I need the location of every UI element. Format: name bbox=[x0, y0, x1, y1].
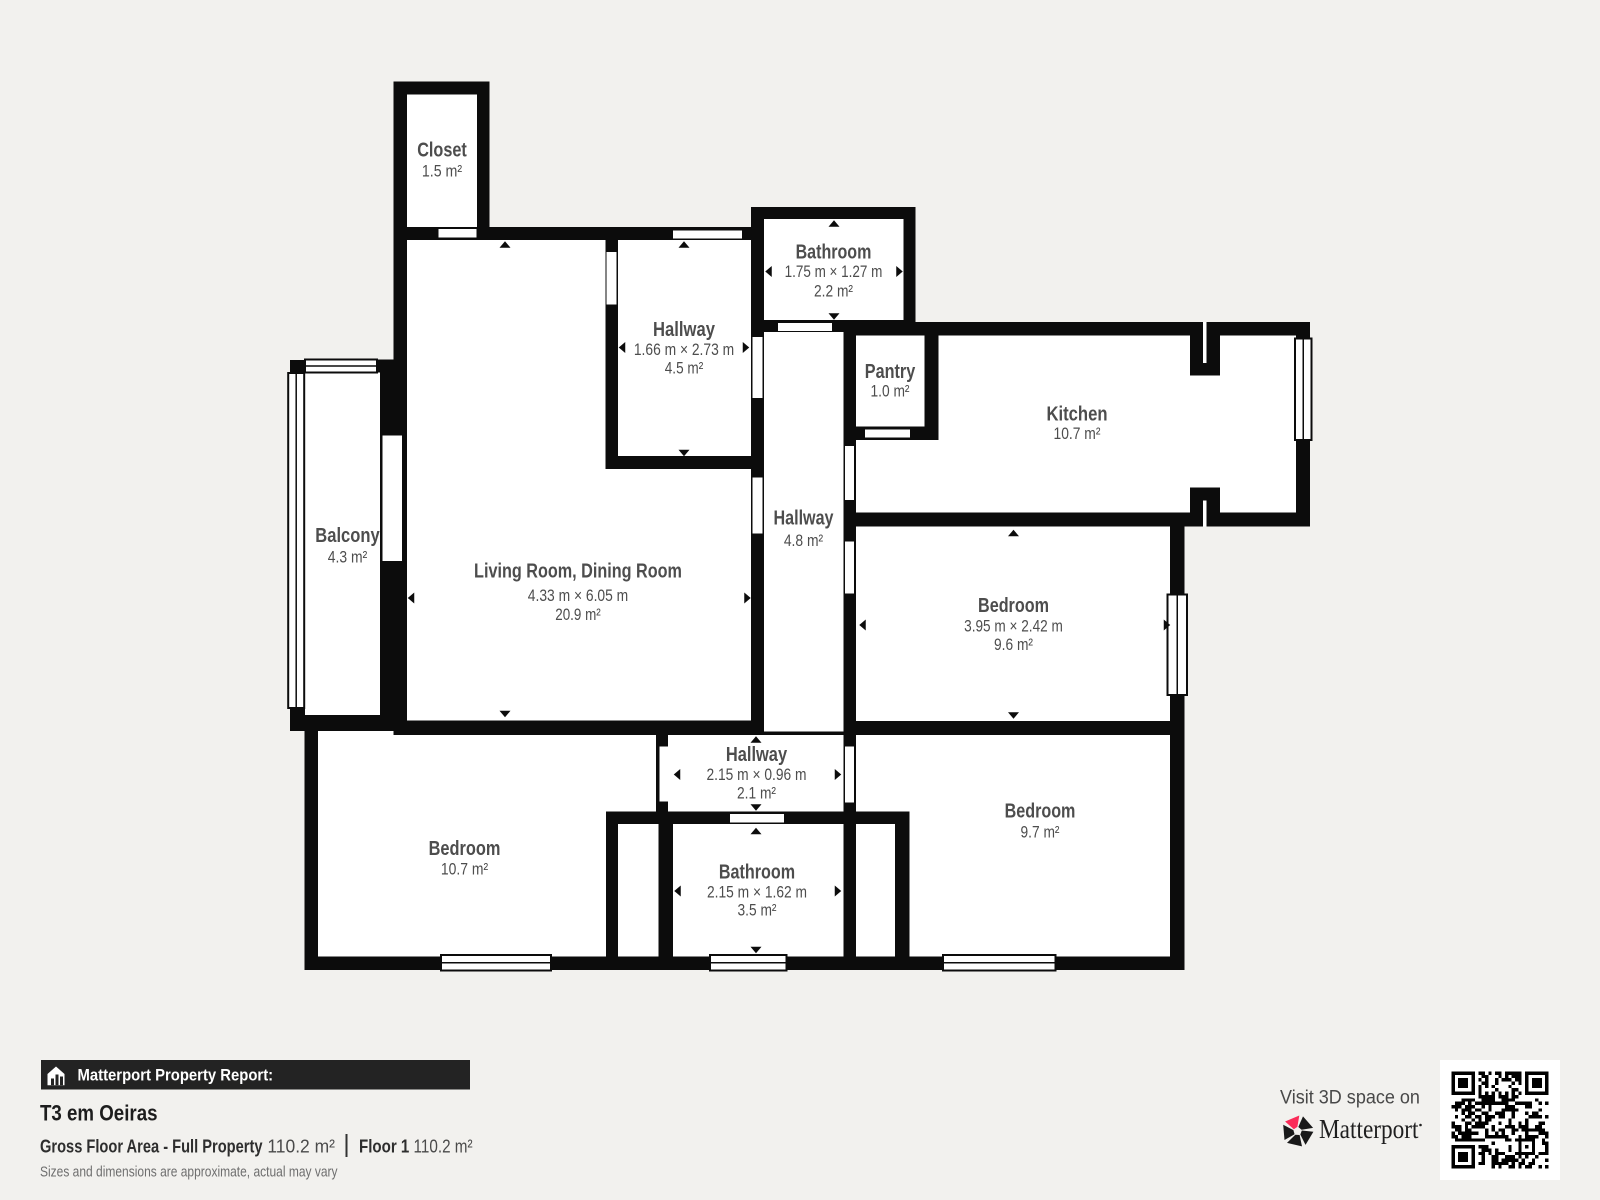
svg-text:3.95 m × 2.42 m: 3.95 m × 2.42 m bbox=[964, 617, 1063, 636]
svg-text:4.8 m²: 4.8 m² bbox=[784, 531, 824, 550]
svg-text:Floor 1 110.2 m²: Floor 1 110.2 m² bbox=[359, 1136, 473, 1157]
svg-text:Gross Floor Area - Full Proper: Gross Floor Area - Full Property 110.2 m… bbox=[40, 1136, 335, 1157]
svg-text:4.5 m²: 4.5 m² bbox=[665, 359, 704, 378]
svg-text:Matterport: Matterport bbox=[1319, 1114, 1419, 1144]
svg-text:10.7 m²: 10.7 m² bbox=[1054, 424, 1101, 443]
svg-text:1.5 m²: 1.5 m² bbox=[422, 162, 463, 181]
svg-text:Bedroom: Bedroom bbox=[429, 838, 501, 860]
svg-text:20.9 m²: 20.9 m² bbox=[555, 605, 601, 624]
svg-text:Bedroom: Bedroom bbox=[978, 595, 1049, 617]
svg-text:Sizes and dimensions are appro: Sizes and dimensions are approximate, ac… bbox=[40, 1164, 338, 1181]
svg-text:2.2 m²: 2.2 m² bbox=[814, 281, 853, 300]
svg-text:4.33 m × 6.05 m: 4.33 m × 6.05 m bbox=[528, 586, 628, 605]
svg-text:4.3 m²: 4.3 m² bbox=[328, 548, 368, 567]
svg-text:Pantry: Pantry bbox=[865, 361, 916, 383]
svg-text:10.7 m²: 10.7 m² bbox=[441, 860, 489, 879]
svg-text:1.0 m²: 1.0 m² bbox=[871, 382, 910, 401]
svg-text:Hallway: Hallway bbox=[653, 319, 716, 341]
svg-text:Balcony: Balcony bbox=[315, 525, 380, 547]
svg-text:3.5 m²: 3.5 m² bbox=[738, 900, 777, 919]
svg-text:1.66 m × 2.73 m: 1.66 m × 2.73 m bbox=[634, 340, 734, 359]
svg-text:Hallway: Hallway bbox=[726, 744, 788, 766]
svg-text:9.7 m²: 9.7 m² bbox=[1021, 823, 1060, 842]
svg-text:2.15 m × 0.96 m: 2.15 m × 0.96 m bbox=[707, 765, 807, 784]
svg-text:2.15 m × 1.62 m: 2.15 m × 1.62 m bbox=[707, 883, 807, 902]
svg-text:2.1 m²: 2.1 m² bbox=[737, 784, 776, 803]
svg-text:9.6 m²: 9.6 m² bbox=[994, 635, 1033, 654]
svg-text:Bathroom: Bathroom bbox=[719, 862, 795, 884]
svg-text:1.75 m × 1.27 m: 1.75 m × 1.27 m bbox=[785, 262, 883, 281]
svg-text:Living Room, Dining Room: Living Room, Dining Room bbox=[474, 561, 682, 583]
svg-text:Bedroom: Bedroom bbox=[1005, 801, 1076, 823]
svg-text:Matterport Property Report:: Matterport Property Report: bbox=[78, 1067, 274, 1085]
svg-text:T3 em Oeiras: T3 em Oeiras bbox=[40, 1101, 158, 1126]
svg-text:Hallway: Hallway bbox=[774, 508, 835, 530]
svg-text:Kitchen: Kitchen bbox=[1047, 404, 1108, 426]
svg-text:Bathroom: Bathroom bbox=[796, 242, 872, 264]
svg-text:Closet: Closet bbox=[417, 140, 467, 162]
svg-text:Visit 3D space on: Visit 3D space on bbox=[1280, 1088, 1420, 1109]
